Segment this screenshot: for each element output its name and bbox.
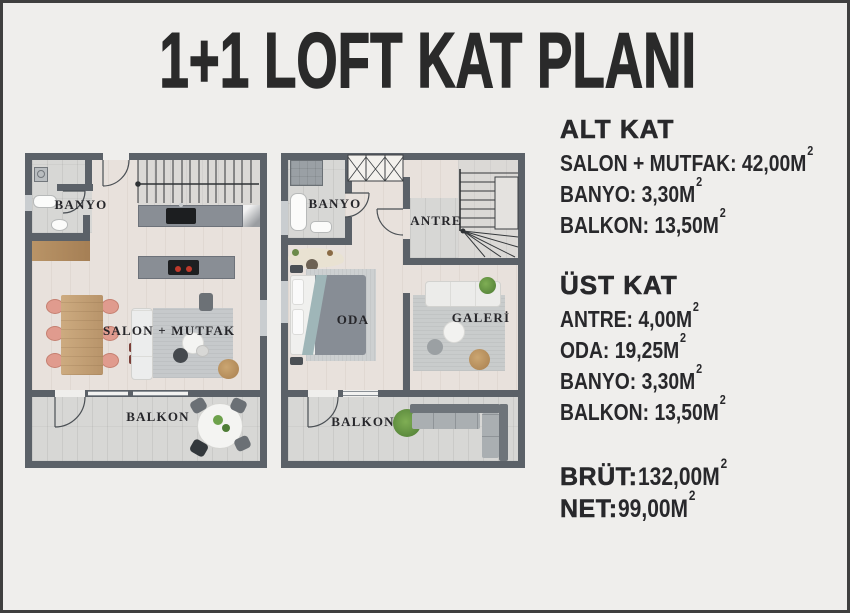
totals: BRÜT: 132,00M2 NET: 99,00M2 [560,461,850,525]
wall [85,160,92,184]
table-plant [222,424,230,432]
shower [290,160,323,186]
wall [83,215,90,233]
wall [378,390,518,397]
wicker-pouf [218,359,239,379]
spec-item: ODA: 19,25M2 [560,335,850,366]
page-title-wrap: 1+1 LOFT KAT PLANI [3,19,850,101]
floor-plan-flyer: 1+1 LOFT KAT PLANI [0,0,850,613]
outer-wall [25,153,103,160]
page-title: 1+1 LOFT KAT PLANI [160,19,697,101]
floor-plan-alt-kat: BANYO SALON + MUTFAK BALKON [25,153,267,468]
wood-cabinet [32,241,90,261]
kitchen-sink [166,208,196,224]
outer-wall [281,461,525,468]
pouf-dark [173,348,188,363]
section-heading-ust-kat: ÜST KAT [560,272,850,299]
window [281,281,288,323]
washing-machine-door [37,170,45,178]
outer-wall [281,153,525,160]
wall [288,238,352,245]
table-plant [213,415,223,425]
spec-item: BALKON: 13,50M2 [560,397,850,428]
floor-plan-ust-kat: BANYO ANTRE ODA GALERİ BALKON [281,153,525,468]
room-label-oda: ODA [323,312,383,328]
pouf-grey [427,339,443,355]
fridge [243,205,260,227]
spec-item: BANYO: 3,30M2 [560,179,850,210]
bench-seat [412,413,480,429]
room-label-banyo: BANYO [49,197,113,213]
window [133,391,188,396]
sofa [131,308,153,380]
outer-wall [518,153,525,468]
room-label-balkon: BALKON [120,409,196,425]
bench-back [410,404,500,413]
spec-list: ALT KAT SALON + MUTFAK: 42,00M2 BANYO: 3… [560,116,850,525]
bench-back-side [499,404,508,461]
desk-decor [327,250,333,256]
wall [403,177,410,209]
wall [403,258,518,265]
pillow [292,309,304,335]
nightstand [290,265,303,273]
cooktop [168,260,199,275]
wall [32,390,55,397]
desk-plant [292,249,299,256]
window [260,300,267,336]
stair-floor [458,160,518,258]
outer-wall [25,461,267,468]
pouf-light [196,345,209,357]
toilet [51,219,68,231]
room-label-antre: ANTRE [408,213,464,229]
nightstand [290,357,303,365]
wall [345,160,352,193]
section-heading-alt-kat: ALT KAT [560,116,850,143]
burner [186,266,192,272]
window [88,391,128,396]
spec-item: ANTRE: 4,00M2 [560,304,850,335]
burner [175,266,181,272]
dining-table [61,295,103,375]
room-label-galeri: GALERİ [443,310,519,326]
wall [32,233,90,241]
dining-chair [101,353,119,368]
window [25,195,32,211]
armchair [199,293,213,311]
outer-wall [129,153,267,160]
wall [345,217,352,238]
room-label-banyo: BANYO [303,196,367,212]
spec-item: SALON + MUTFAK: 42,00M2 [560,148,850,179]
total-net: NET: 99,00M2 [560,493,850,525]
bathroom-sink [310,221,332,233]
bench-seat-side [482,413,499,458]
room-label-salon-mutfak: SALON + MUTFAK [103,323,223,339]
wall [403,293,410,390]
total-brut: BRÜT: 132,00M2 [560,461,850,493]
spec-item: BANYO: 3,30M2 [560,366,850,397]
room-label-balkon: BALKON [325,414,401,430]
window [281,201,288,235]
stair-floor [138,160,260,205]
wall [288,390,308,397]
galeri-plant [479,277,496,294]
faucet [179,203,183,207]
window [343,391,378,396]
spec-item: BALKON: 13,50M2 [560,210,850,241]
dining-chair [101,299,119,314]
pillow [292,279,304,305]
wicker-pouf [469,349,490,370]
wall [57,184,93,191]
